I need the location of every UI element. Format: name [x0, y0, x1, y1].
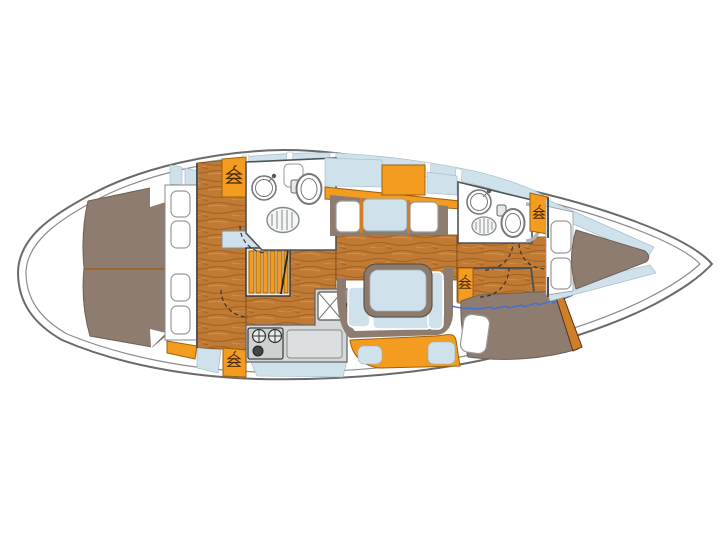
dinette-base-inset — [428, 342, 455, 364]
stove-burner-small — [253, 346, 263, 356]
salon-window-panel — [427, 172, 457, 195]
hanging-locker — [222, 157, 246, 197]
dinette-base-inset — [358, 346, 382, 364]
floorplan-canvas — [0, 0, 720, 540]
shower-grate — [267, 208, 299, 233]
quarter-berth-mattress — [459, 313, 490, 354]
pillow — [171, 221, 190, 248]
pillow — [171, 274, 190, 301]
stove-burner — [269, 330, 282, 343]
stove-burner — [253, 330, 266, 343]
settee-back-block — [382, 165, 425, 195]
settee-cushion — [363, 199, 407, 231]
cushion-divider — [360, 198, 363, 233]
cushion-divider — [407, 200, 410, 233]
settee-cushion — [336, 201, 360, 232]
hanging-locker — [530, 193, 548, 234]
shower-grate — [472, 217, 496, 235]
salon-window-panel — [325, 158, 382, 187]
aft-shelf-panel — [170, 165, 182, 185]
pillow — [551, 258, 571, 289]
pillow — [171, 306, 190, 334]
aft-head — [240, 158, 336, 253]
boat-interior-floorplan — [0, 0, 720, 540]
chopping-board — [287, 330, 342, 358]
settee-cushion — [410, 202, 438, 232]
aft-head-room — [246, 158, 336, 250]
pillow — [551, 221, 571, 253]
aft-double-berth — [83, 188, 165, 347]
pillow — [171, 191, 190, 217]
dinette-table — [364, 264, 432, 317]
